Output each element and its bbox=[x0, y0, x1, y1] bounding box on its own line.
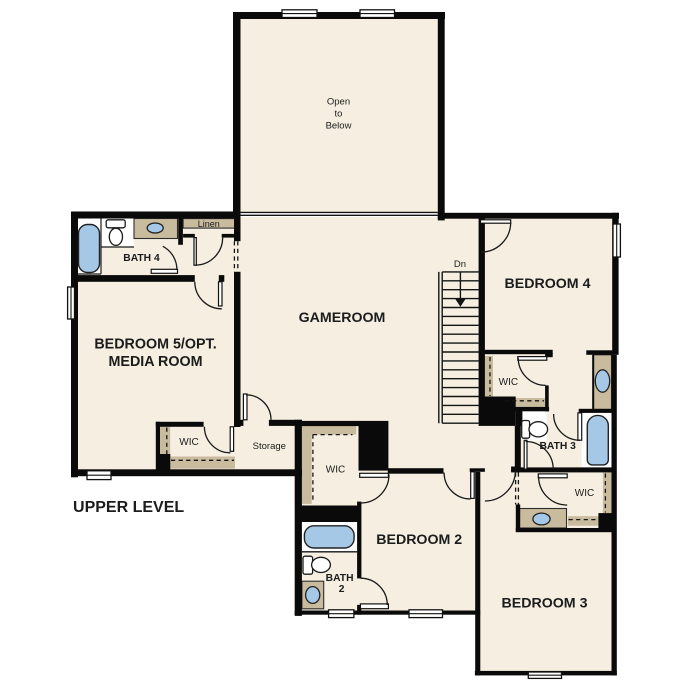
svg-text:UPPER LEVEL: UPPER LEVEL bbox=[73, 499, 184, 516]
svg-text:WIC: WIC bbox=[326, 464, 345, 475]
svg-text:WIC: WIC bbox=[179, 437, 198, 448]
svg-text:BEDROOM 3: BEDROOM 3 bbox=[502, 596, 588, 612]
svg-text:GAMEROOM: GAMEROOM bbox=[299, 310, 386, 326]
svg-text:Dn: Dn bbox=[454, 259, 466, 270]
svg-text:Open: Open bbox=[327, 97, 350, 108]
svg-text:BEDROOM 4: BEDROOM 4 bbox=[505, 276, 591, 292]
svg-text:BEDROOM 5/OPT.: BEDROOM 5/OPT. bbox=[94, 337, 216, 353]
svg-text:BATH: BATH bbox=[326, 573, 354, 584]
svg-text:to: to bbox=[335, 109, 343, 120]
svg-text:2: 2 bbox=[339, 584, 345, 595]
svg-text:BATH 3: BATH 3 bbox=[539, 441, 576, 452]
svg-text:BATH 4: BATH 4 bbox=[123, 253, 160, 264]
svg-text:Below: Below bbox=[326, 121, 352, 132]
svg-text:WIC: WIC bbox=[575, 488, 594, 499]
svg-text:WIC: WIC bbox=[499, 377, 518, 388]
svg-text:Linen: Linen bbox=[198, 219, 220, 229]
svg-text:Storage: Storage bbox=[253, 441, 286, 452]
svg-text:BEDROOM 2: BEDROOM 2 bbox=[376, 532, 462, 548]
svg-text:MEDIA ROOM: MEDIA ROOM bbox=[109, 354, 203, 370]
